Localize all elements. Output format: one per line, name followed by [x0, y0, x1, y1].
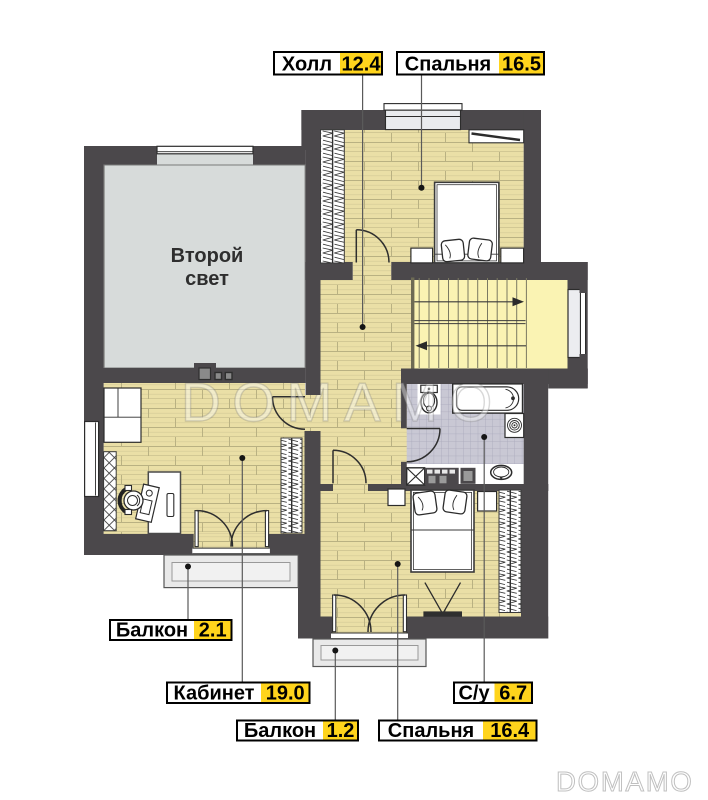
- svg-text:Спальня: Спальня: [405, 54, 491, 76]
- svg-text:Второй: Второй: [171, 245, 244, 267]
- svg-text:Балкон: Балкон: [116, 620, 188, 642]
- svg-text:16.5: 16.5: [502, 54, 541, 76]
- svg-text:12.4: 12.4: [342, 54, 382, 76]
- svg-text:Спальня: Спальня: [388, 720, 474, 742]
- svg-text:Холл: Холл: [282, 54, 332, 76]
- svg-text:1.2: 1.2: [327, 720, 355, 742]
- svg-text:16.4: 16.4: [490, 720, 530, 742]
- svg-text:С/у: С/у: [458, 683, 490, 705]
- svg-text:2.1: 2.1: [199, 620, 227, 642]
- svg-text:6.7: 6.7: [499, 683, 527, 705]
- svg-text:19.0: 19.0: [266, 683, 305, 705]
- svg-text:свет: свет: [185, 268, 229, 290]
- svg-text:DOMAMO: DOMAMO: [556, 766, 694, 797]
- svg-text:Балкон: Балкон: [244, 720, 316, 742]
- svg-text:Кабинет: Кабинет: [174, 683, 255, 705]
